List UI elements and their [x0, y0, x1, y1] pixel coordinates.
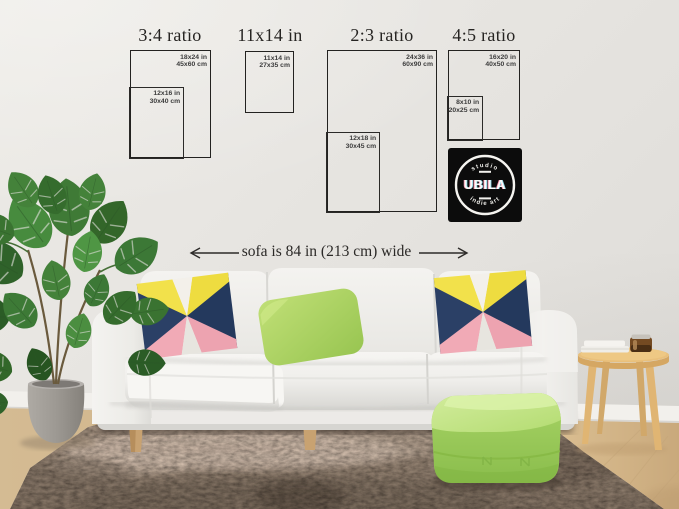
svg-text:UBILA: UBILA — [464, 178, 506, 192]
